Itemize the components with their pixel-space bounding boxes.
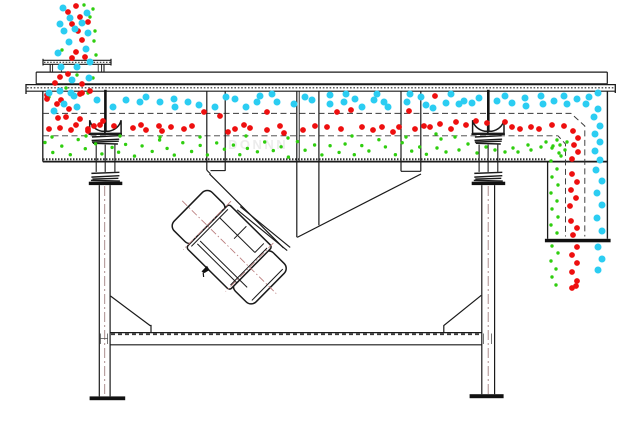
svg-text:DONNN: DONNN	[228, 137, 288, 152]
